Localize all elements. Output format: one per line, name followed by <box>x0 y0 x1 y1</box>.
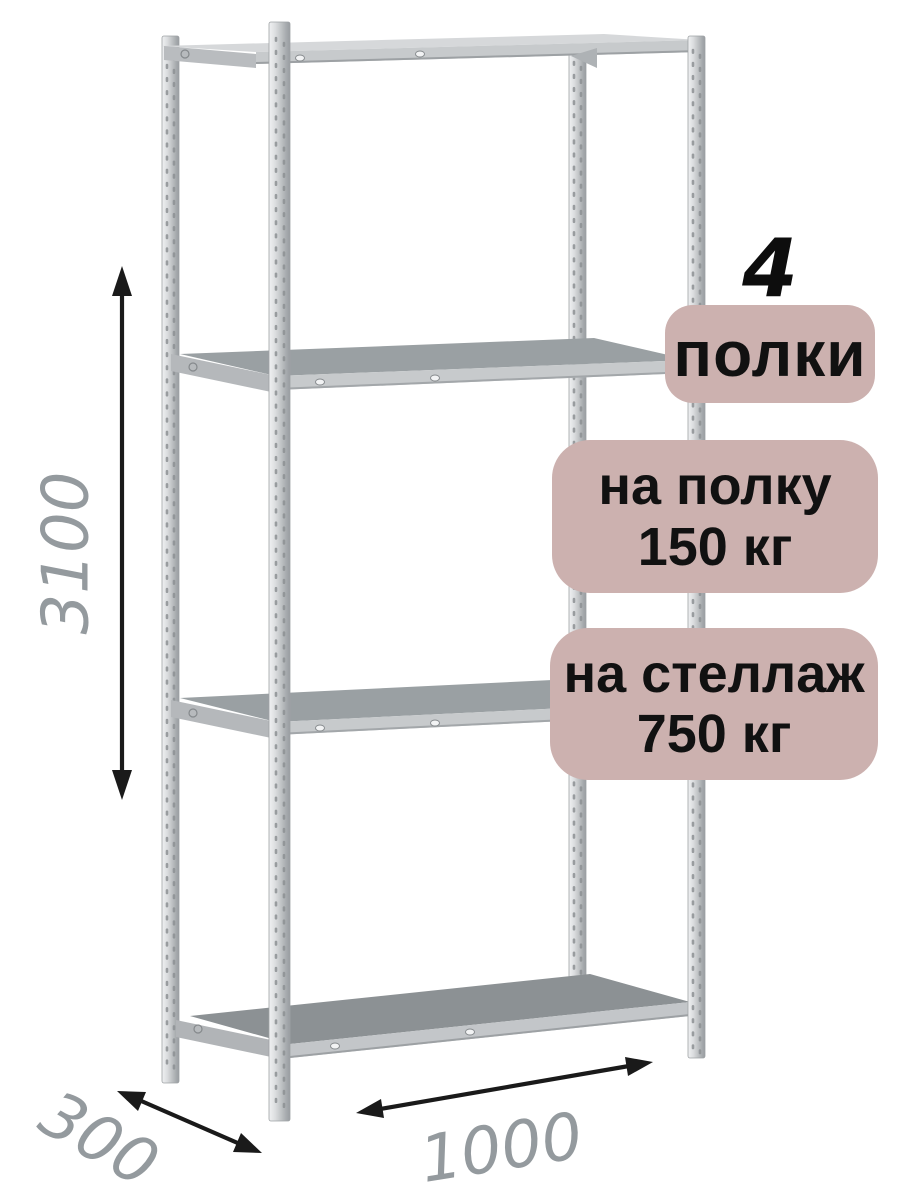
height-dimension-label: 3100 <box>30 472 104 635</box>
shelf-4 <box>176 974 690 1061</box>
per-shelf-load-badge: на полку 150 кг <box>552 440 878 593</box>
height-arrow-head-bottom <box>112 770 132 800</box>
per-rack-load-line1: на стеллаж <box>563 644 864 704</box>
depth-arrow-head-left <box>117 1091 146 1111</box>
shelf-count-badge: полки <box>665 305 875 403</box>
width-dimension: 1000 <box>356 1057 653 1198</box>
product-image: 3100 300 1000 4 полки на полку 150 кг на… <box>0 0 900 1200</box>
post-back-left <box>162 36 179 1083</box>
width-arrow-head-right <box>625 1057 653 1076</box>
width-dimension-label: 1000 <box>415 1099 587 1198</box>
rack-illustration: 3100 300 1000 <box>0 0 900 1200</box>
per-rack-load-badge: на стеллаж 750 кг <box>550 628 878 780</box>
depth-dimension-label: 300 <box>27 1077 170 1200</box>
height-dimension: 3100 <box>30 266 132 800</box>
width-arrow <box>380 1066 629 1109</box>
per-shelf-load-line1: на полку <box>598 456 831 516</box>
depth-dimension: 300 <box>27 1077 262 1200</box>
shelf-1 <box>160 34 700 68</box>
shelf-count-badge-label: полки <box>673 317 866 391</box>
per-shelf-load-line2: 150 кг <box>638 517 793 577</box>
width-arrow-head-left <box>356 1099 384 1118</box>
height-arrow-head-top <box>112 266 132 296</box>
per-rack-load-line2: 750 кг <box>637 704 792 764</box>
post-front-left <box>269 22 290 1121</box>
shelf-2 <box>171 338 690 393</box>
shelf-count-number: 4 <box>665 226 875 312</box>
depth-arrow-head-right <box>233 1133 262 1153</box>
